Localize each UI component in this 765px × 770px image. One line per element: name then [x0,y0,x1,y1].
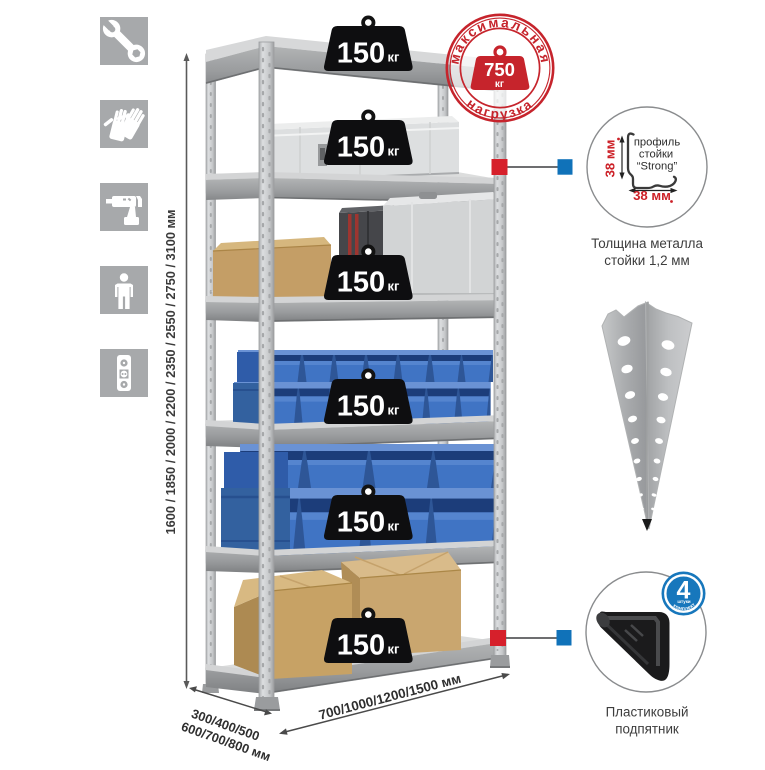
svg-text:стойки 1,2 мм: стойки 1,2 мм [604,253,689,268]
svg-text:подпятник: подпятник [615,722,679,737]
svg-text:профиль: профиль [634,137,680,149]
svg-text:1600 / 1850 / 2000 / 2200 / 23: 1600 / 1850 / 2000 / 2200 / 2350 / 2550 … [163,210,178,535]
svg-text:кг: кг [495,79,504,90]
svg-text:750: 750 [484,59,515,80]
svg-text:38 мм: 38 мм [603,140,618,178]
svg-text:стойки: стойки [639,149,673,161]
svg-text:штуки: штуки [677,599,691,604]
svg-text:Толщина металла: Толщина металла [591,236,703,251]
svg-text:Пластиковый: Пластиковый [606,705,689,720]
svg-text:38 мм: 38 мм [633,188,671,203]
svg-text:“Strong”: “Strong” [637,161,678,173]
